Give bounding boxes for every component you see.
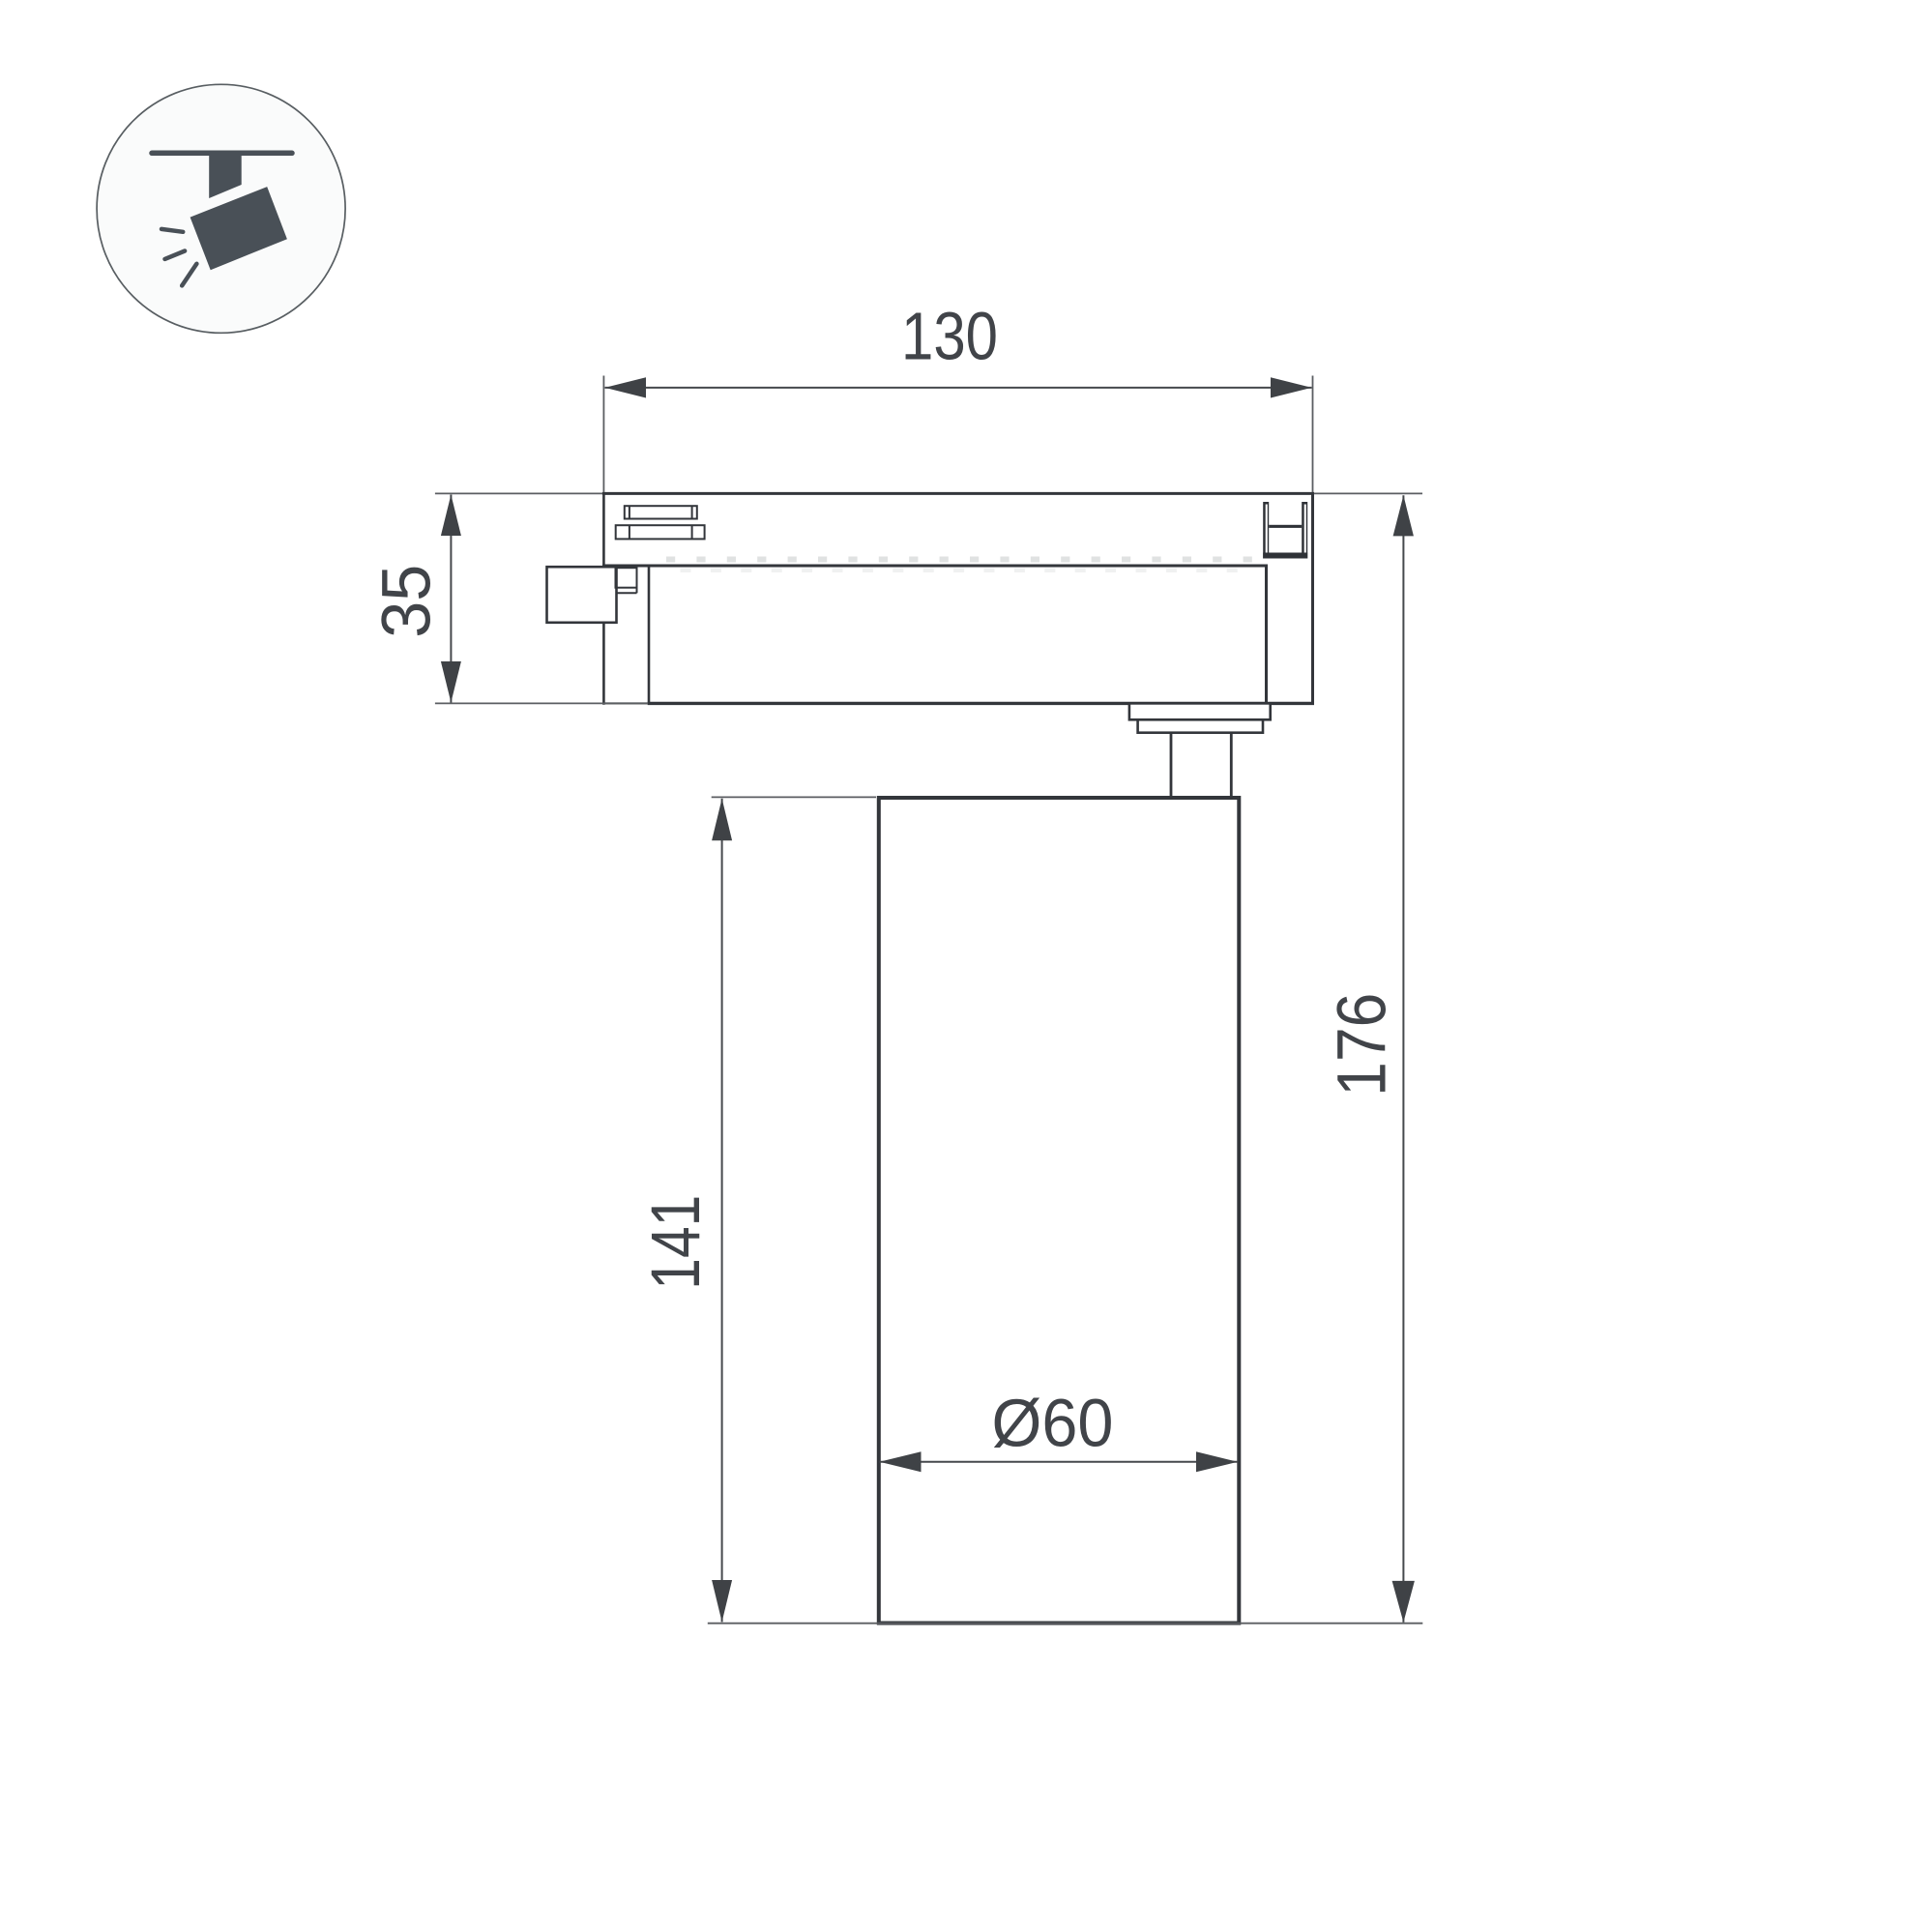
svg-text:130: 130 (901, 299, 998, 374)
svg-text:35: 35 (367, 565, 445, 638)
svg-text:Ø60: Ø60 (992, 1386, 1114, 1461)
svg-text:176: 176 (1324, 993, 1401, 1097)
svg-text:141: 141 (637, 1195, 715, 1290)
